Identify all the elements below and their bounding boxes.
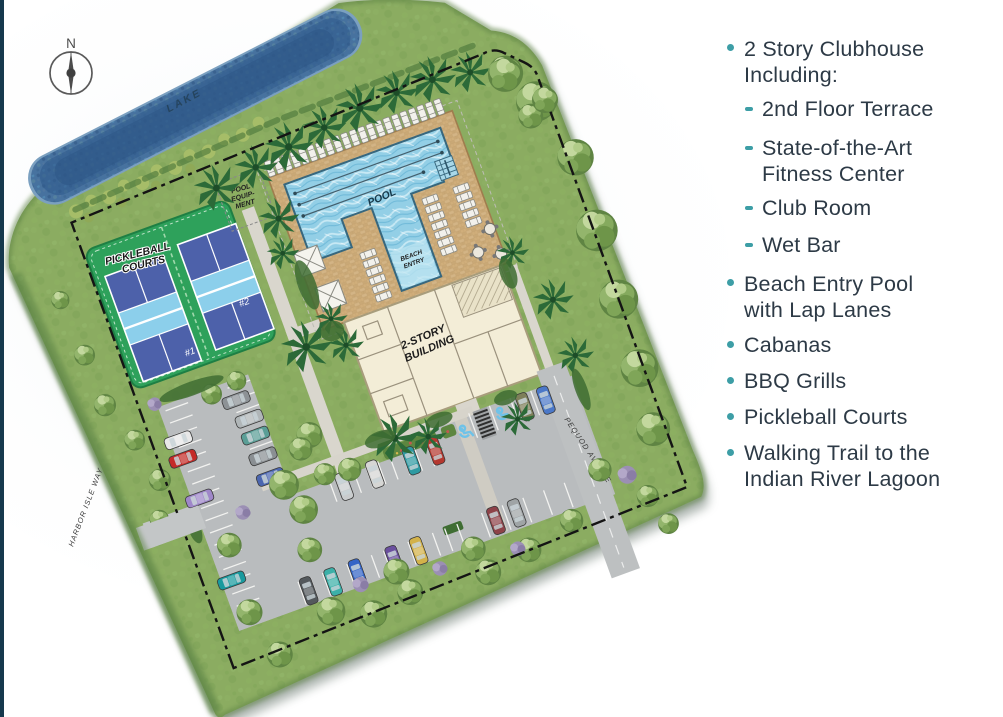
- svg-text:N: N: [66, 36, 76, 51]
